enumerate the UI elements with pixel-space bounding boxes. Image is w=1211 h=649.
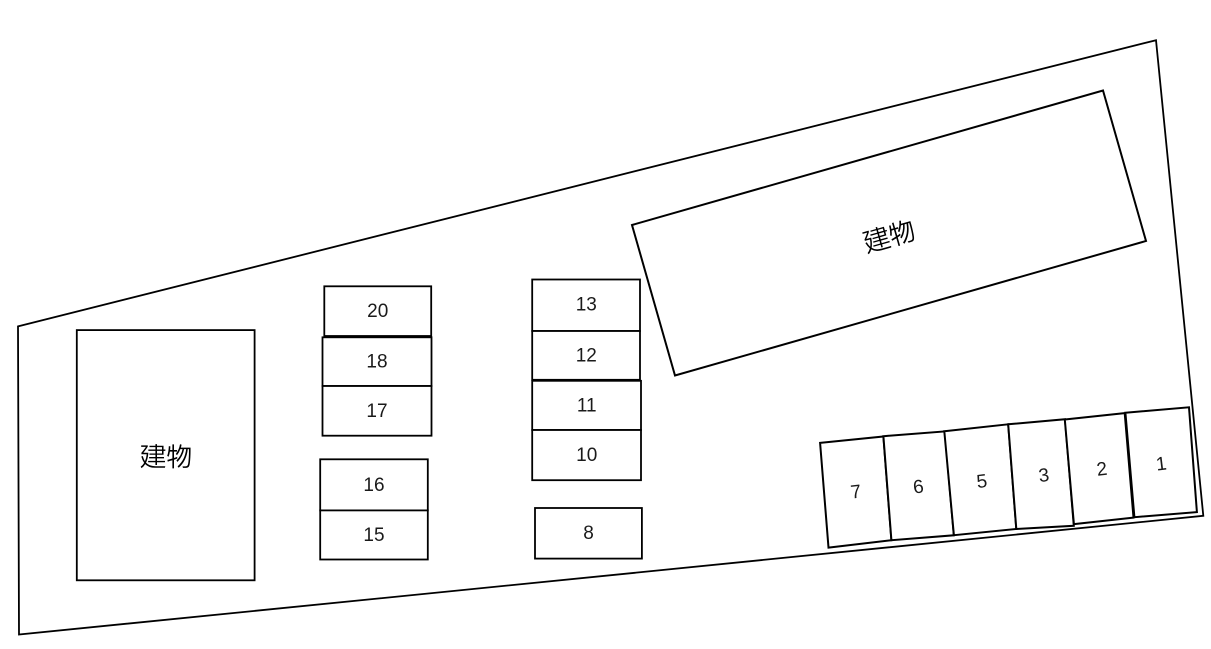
svg-text:20: 20 <box>367 301 388 322</box>
svg-text:17: 17 <box>366 401 387 422</box>
svg-text:11: 11 <box>577 396 597 417</box>
svg-text:8: 8 <box>583 523 594 544</box>
svg-text:16: 16 <box>363 475 384 496</box>
svg-text:13: 13 <box>576 294 597 315</box>
svg-text:12: 12 <box>576 345 597 366</box>
svg-text:15: 15 <box>363 525 384 546</box>
svg-text:10: 10 <box>576 445 597 466</box>
svg-text:18: 18 <box>366 352 387 373</box>
